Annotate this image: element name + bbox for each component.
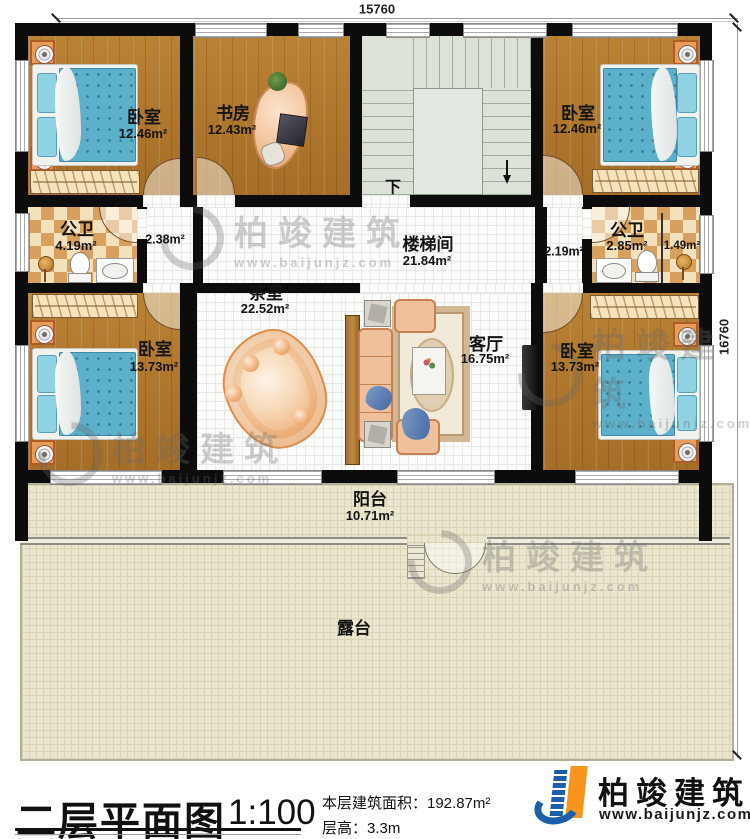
closet-bedroom-tl	[30, 170, 140, 194]
sink-basin-icon	[602, 263, 626, 279]
door-gap-bedroom-bl	[143, 283, 180, 293]
tea-stone	[273, 338, 290, 355]
flowers-icon	[421, 356, 437, 372]
stair-arrow-stem	[506, 160, 508, 175]
plan-title: 二层平面图	[16, 789, 226, 839]
lamp-icon	[35, 325, 54, 344]
armchair-top	[394, 299, 436, 333]
window-right-bedroom-tr	[699, 60, 714, 152]
nightstand	[673, 322, 698, 347]
dimension-line-right	[737, 24, 738, 758]
area-shower-right: 1.49m²	[664, 240, 700, 252]
shower-head-icon	[38, 256, 54, 272]
shower-head-icon	[676, 254, 692, 270]
area-bath-left: 4.19m²	[55, 239, 96, 253]
window-bottom-tea	[223, 470, 322, 485]
window-bottom-bedroom-br	[575, 470, 679, 485]
toilet-tank	[635, 272, 659, 282]
tea-stone	[225, 385, 242, 402]
bed-bedroom-tr	[600, 64, 700, 166]
stair-down-label: 下	[385, 181, 401, 198]
coffee-table	[412, 347, 446, 395]
tea-stone	[293, 408, 310, 425]
floor-plan-page: 柏竣建筑 www.baijunjz.com 柏竣建筑 www.baijunjz.…	[0, 0, 750, 839]
area-living-room: 16.75m²	[461, 352, 509, 366]
label-stairwell: 楼梯间	[403, 236, 454, 254]
dimension-line-top-2	[55, 21, 738, 22]
area-tea-room: 22.52m²	[241, 302, 289, 316]
area-hall-right: 2.19m²	[544, 245, 584, 258]
side-table	[364, 421, 391, 448]
door-gap-bedroom-br	[543, 283, 583, 293]
label-terrace: 露台	[337, 620, 371, 638]
door-gap-bath-right	[582, 209, 592, 239]
area-hall-left: 2.38m²	[145, 233, 185, 246]
tea-stone	[242, 355, 259, 372]
shower-stem	[682, 267, 684, 280]
window-left-bath	[15, 213, 30, 272]
lamp-icon	[678, 327, 697, 346]
window-bottom-living	[397, 470, 495, 485]
sink-basin-icon	[102, 263, 128, 279]
area-bedroom-br: 13.73m²	[551, 360, 599, 374]
sink-counter	[596, 258, 632, 283]
nightstand	[30, 440, 55, 465]
wall-stub-right	[699, 483, 712, 541]
plan-scale: 1:100	[228, 793, 316, 833]
bed-bedroom-bl	[32, 348, 138, 440]
shower-partition	[661, 213, 663, 283]
terrace-steps	[407, 545, 425, 579]
brand-logo-icon	[536, 766, 592, 828]
nightstand	[30, 320, 55, 345]
area-stairwell: 21.84m²	[403, 254, 451, 268]
area-balcony: 10.71m²	[346, 509, 394, 523]
window-left-bedroom-bl	[15, 345, 30, 442]
balcony-railing	[20, 537, 730, 545]
plant-icon	[268, 72, 287, 91]
closet-bedroom-tr	[592, 169, 699, 193]
label-bath-left: 公卫	[60, 221, 94, 239]
bed-bedroom-br	[598, 350, 700, 440]
bed-bedroom-tl	[32, 64, 138, 166]
nightstand	[673, 438, 698, 463]
nightstand	[673, 40, 698, 65]
label-bedroom-bl: 卧室	[138, 341, 172, 359]
dimension-line-top	[55, 18, 738, 19]
floor-height-text: 层高：3.3m	[322, 817, 400, 838]
shower-stem	[44, 269, 46, 282]
closet-bedroom-br	[590, 295, 699, 319]
area-bath-right: 2.85m²	[606, 239, 647, 253]
door-gap-bedroom-tl	[143, 195, 180, 207]
window-right-bedroom-br	[699, 345, 714, 442]
window-top-study-2	[298, 23, 344, 38]
lamp-icon	[35, 45, 54, 64]
label-study: 书房	[216, 105, 250, 123]
floor-area-text: 本层建筑面积：192.87m²	[322, 792, 490, 813]
wall-hall-left	[193, 207, 203, 283]
area-bedroom-bl: 13.73m²	[130, 360, 178, 374]
title-underline	[15, 828, 301, 831]
lamp-icon	[678, 443, 697, 462]
closet-bedroom-bl	[32, 294, 138, 318]
label-bedroom-tl: 卧室	[127, 109, 161, 127]
lamp-icon	[35, 445, 54, 464]
area-bedroom-tl: 12.46m²	[119, 127, 167, 141]
title-underline-2	[15, 834, 301, 835]
area-study: 12.43m²	[208, 123, 256, 137]
brand-url: www.baijunjz.com	[599, 806, 750, 823]
door-gap-study	[197, 195, 235, 207]
toilet-icon	[637, 250, 657, 274]
side-table	[364, 300, 391, 327]
opening-corridor-living	[360, 283, 531, 293]
lamp-icon	[678, 45, 697, 64]
label-balcony: 阳台	[353, 491, 387, 509]
tv-icon	[522, 345, 537, 410]
window-right-bath	[699, 215, 714, 274]
window-top-study-1	[195, 23, 267, 38]
door-gap-bedroom-tr	[543, 195, 583, 207]
terrace-floor	[20, 483, 734, 761]
stair-landing	[413, 88, 483, 195]
computer-monitor-icon	[276, 113, 308, 147]
window-bottom-bedroom-bl	[50, 470, 162, 485]
sink-counter	[96, 258, 134, 283]
toilet-tank	[68, 273, 92, 283]
nightstand	[30, 40, 55, 65]
wall-stub-left	[15, 483, 28, 541]
window-left-bedroom-tl	[15, 60, 30, 152]
stair-treads-top	[413, 36, 531, 88]
area-bedroom-tr: 12.46m²	[553, 122, 601, 136]
window-top-bedroom-tr	[572, 23, 678, 38]
stair-down-arrow-icon	[503, 175, 511, 184]
dimension-right-value: 16760	[717, 319, 732, 355]
dimension-top-value: 15760	[359, 2, 395, 17]
